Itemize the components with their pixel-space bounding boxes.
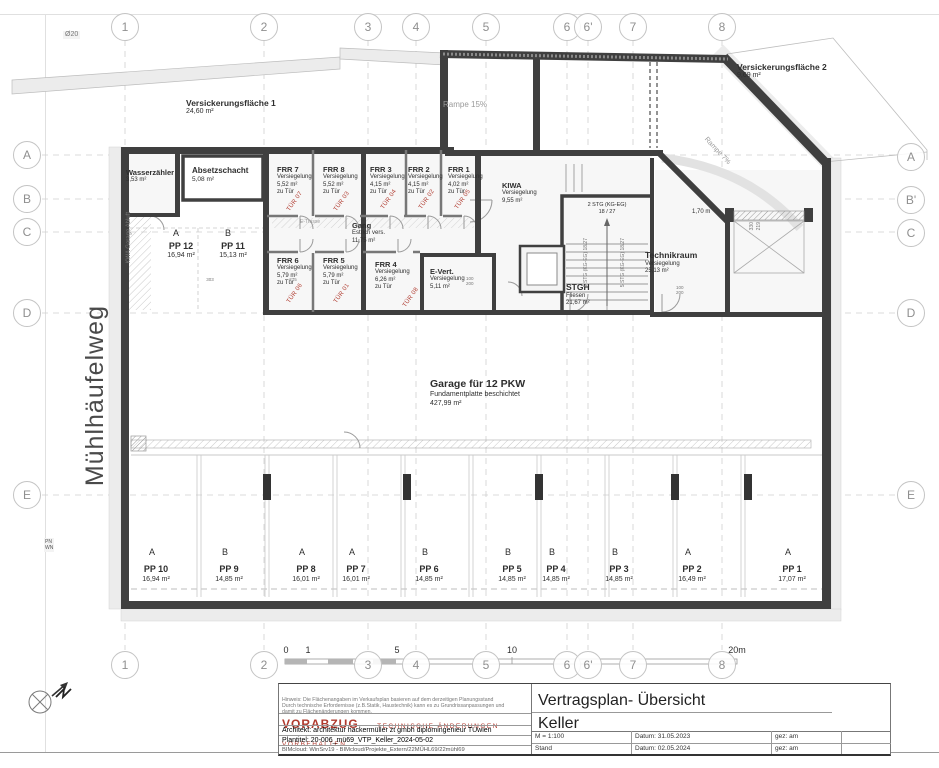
- titleblock-bimcloud: BIMcloud: WinSrv19 - BIMcloud/Projekte_E…: [279, 745, 531, 754]
- scale-1: 1: [305, 645, 310, 656]
- title-block: Hinweis: Die Flächenangaben im Verkaufsp…: [278, 683, 891, 756]
- grid-top-2: 2: [250, 13, 278, 41]
- door-dim-evert: 100200: [466, 276, 474, 287]
- stair-upper-label: 2 STG (KG-EG)18 / 27: [588, 202, 627, 215]
- room-frr8: FRR 8Versiegelung 5,52 m²zu Tür: [323, 165, 358, 197]
- pp3-type: B: [612, 547, 618, 558]
- datum1-cell: Datum: 31.05.2023: [632, 731, 772, 743]
- pp10-code: PP 10: [144, 564, 168, 575]
- walls: [121, 50, 831, 609]
- grid-left-e: E: [13, 481, 41, 509]
- pp2-type: A: [685, 547, 691, 558]
- pp7-code: PP 7: [346, 564, 365, 575]
- door-dim-technik: 100200: [676, 285, 684, 296]
- pp11-code: PP 11: [221, 241, 245, 252]
- pp1-code: PP 1: [782, 564, 801, 575]
- grid-left-b: B: [13, 185, 41, 213]
- pp10-type: A: [149, 547, 155, 558]
- room-frr7: FRR 7Versiegelung 5,52 m²zu Tür: [277, 165, 312, 197]
- pp2-area: 16,49 m²: [678, 576, 706, 584]
- pp7-type: A: [349, 547, 355, 558]
- titleblock-vorabzug: VORABZUG TECHNISCHE ÄNDERUNGEN VORBEHALT…: [279, 713, 531, 725]
- grid-bottom-5: 5: [472, 651, 500, 679]
- pp6-type: B: [422, 547, 428, 558]
- grid-top-1: 1: [111, 13, 139, 41]
- stand-cell: Stand: [532, 743, 632, 754]
- pp10-area: 16,94 m²: [142, 576, 170, 584]
- pp12-type: A: [173, 228, 179, 239]
- kwa-abluft-label: KWA Garage Abluft: [126, 212, 133, 263]
- grid-top-5: 5: [472, 13, 500, 41]
- north-arrow-icon: [29, 682, 71, 713]
- grid-right-a: A: [897, 143, 925, 171]
- grid-right-c: C: [897, 219, 925, 247]
- room-garage: Garage für 12 PKW Fundamentplatte beschi…: [430, 378, 525, 409]
- dim-219: 219: [756, 222, 762, 230]
- pp1-area: 17,07 m²: [778, 576, 806, 584]
- grid-bottom-3: 3: [354, 651, 382, 679]
- room-technikraum: TechnikraumVersiegelung 25,13 m²: [645, 250, 697, 276]
- pp8-type: A: [299, 547, 305, 558]
- scale-cell: M = 1:100: [532, 731, 632, 743]
- grid-bottom-2: 2: [250, 651, 278, 679]
- pp2-code: PP 2: [682, 564, 701, 575]
- room-frr4: FRR 4Versiegelung 6,26 m²zu Tür: [375, 260, 410, 292]
- pp3-area: 14,85 m²: [605, 576, 633, 584]
- pp3-code: PP 3: [609, 564, 628, 575]
- room-frr3: FRR 3Versiegelung 4,15 m²zu Tür: [370, 165, 405, 197]
- pp11-area: 15,13 m²: [219, 252, 247, 260]
- dim-303: 303: [206, 277, 214, 282]
- grid-right-bp: B': [897, 186, 925, 214]
- grid-bottom-7: 7: [619, 651, 647, 679]
- pp6-area: 14,85 m²: [415, 576, 443, 584]
- room-gang: GangEstrich vers. 11,75 m²: [352, 221, 385, 245]
- scale-bar: [285, 657, 737, 664]
- titleblock-architekt: Architekt: architektur hackermüller zt g…: [279, 725, 531, 735]
- pp6-code: PP 6: [419, 564, 438, 575]
- pn-wn-label: PNWN: [44, 538, 54, 552]
- drainage-channel: [131, 440, 811, 448]
- rampe15-label: Rampe 15%: [443, 100, 487, 110]
- grid-top-4: 4: [402, 13, 430, 41]
- pp5-type: B: [505, 547, 511, 558]
- grid-bottom-6p: 6': [574, 651, 602, 679]
- stair-flight-label-1: 5 STG (KG-EG) 18/27: [583, 238, 589, 287]
- room-frr2: FRR 2Versiegelung 4,15 m²zu Tür: [408, 165, 443, 197]
- grid-bottom-1: 1: [111, 651, 139, 679]
- titleblock-right: Vertragsplan- Übersicht Keller M = 1:100…: [531, 684, 890, 754]
- scale-0: 0: [283, 645, 288, 656]
- pp4-type: B: [549, 547, 555, 558]
- grid-top-8: 8: [708, 13, 736, 41]
- grid-left-d: D: [13, 299, 41, 327]
- stair-flight-label-2: 5 STG (KG-EG) 18/27: [620, 238, 626, 287]
- room-kiwa: KIWAVersiegelung 9,55 m²: [502, 181, 537, 205]
- scale-10: 10: [507, 645, 517, 656]
- titleblock-plantitel: Plantitel: 20-006_mü69_VTP_Keller_2024-0…: [279, 735, 531, 745]
- gez1-cell: gez: am: [772, 731, 842, 743]
- versickerung2-label: Versickerungsfläche 29,69 m²: [737, 62, 827, 81]
- ramp-grille: [650, 62, 657, 148]
- pp5-area: 14,85 m²: [498, 576, 526, 584]
- pp12-code: PP 12: [169, 241, 193, 252]
- room-wasserzaehler: Wasserzähler3,53 m²: [126, 168, 174, 185]
- e-trasse-label: E-Trasse: [300, 219, 320, 225]
- door-width-label: 1,70 m: [692, 209, 710, 216]
- room-evert: E-Vert.Versiegelung 5,11 m²: [430, 267, 465, 291]
- pp9-type: B: [222, 547, 228, 558]
- pp4-area: 14,85 m²: [542, 576, 570, 584]
- pp7-area: 16,01 m²: [342, 576, 370, 584]
- room-frr6: FRR 6Versiegelung 5,79 m²zu Tür: [277, 256, 312, 288]
- gez2-cell: gez: am: [772, 743, 842, 754]
- grid-top-3: 3: [354, 13, 382, 41]
- floor-plan-sheet: 1 2 3 4 5 6 6' 7 8 1 2 3 4 5 6 6' 7 8 A …: [0, 0, 939, 768]
- pp1-type: A: [785, 547, 791, 558]
- street-label: Mühlhäufelweg: [80, 305, 110, 486]
- scale-5: 5: [394, 645, 399, 656]
- pp8-area: 16,01 m²: [292, 576, 320, 584]
- datum2-cell: Datum: 02.05.2024: [632, 743, 772, 754]
- grid-top-6p: 6': [574, 13, 602, 41]
- room-frr5: FRR 5Versiegelung 5,79 m²zu Tür: [323, 256, 358, 288]
- pp11-type: B: [225, 228, 231, 239]
- room-absetzschacht: Absetzschacht5,08 m²: [192, 166, 248, 184]
- pp8-code: PP 8: [296, 564, 315, 575]
- versickerung1-label: Versickerungsfläche 124,60 m²: [186, 98, 276, 117]
- diameter-note: Ø20: [63, 31, 80, 39]
- grid-right-e: E: [897, 481, 925, 509]
- dim-275: 275: [289, 277, 297, 282]
- pp12-area: 16,94 m²: [167, 252, 195, 260]
- grid-top-7: 7: [619, 13, 647, 41]
- pp5-code: PP 5: [502, 564, 521, 575]
- grid-left-c: C: [13, 218, 41, 246]
- grid-bottom-4: 4: [402, 651, 430, 679]
- plan-title: Vertragsplan- Übersicht: [538, 691, 705, 710]
- grid-left-a: A: [13, 141, 41, 169]
- pp4-code: PP 4: [546, 564, 565, 575]
- dim-330: 330: [749, 222, 755, 230]
- titleblock-hinweis: Hinweis: Die Flächenangaben im Verkaufsp…: [279, 696, 531, 713]
- drain-box: [131, 436, 146, 451]
- grid-right-d: D: [897, 299, 925, 327]
- pp9-area: 14,85 m²: [215, 576, 243, 584]
- pp9-code: PP 9: [219, 564, 238, 575]
- scale-20: 20m: [728, 645, 746, 656]
